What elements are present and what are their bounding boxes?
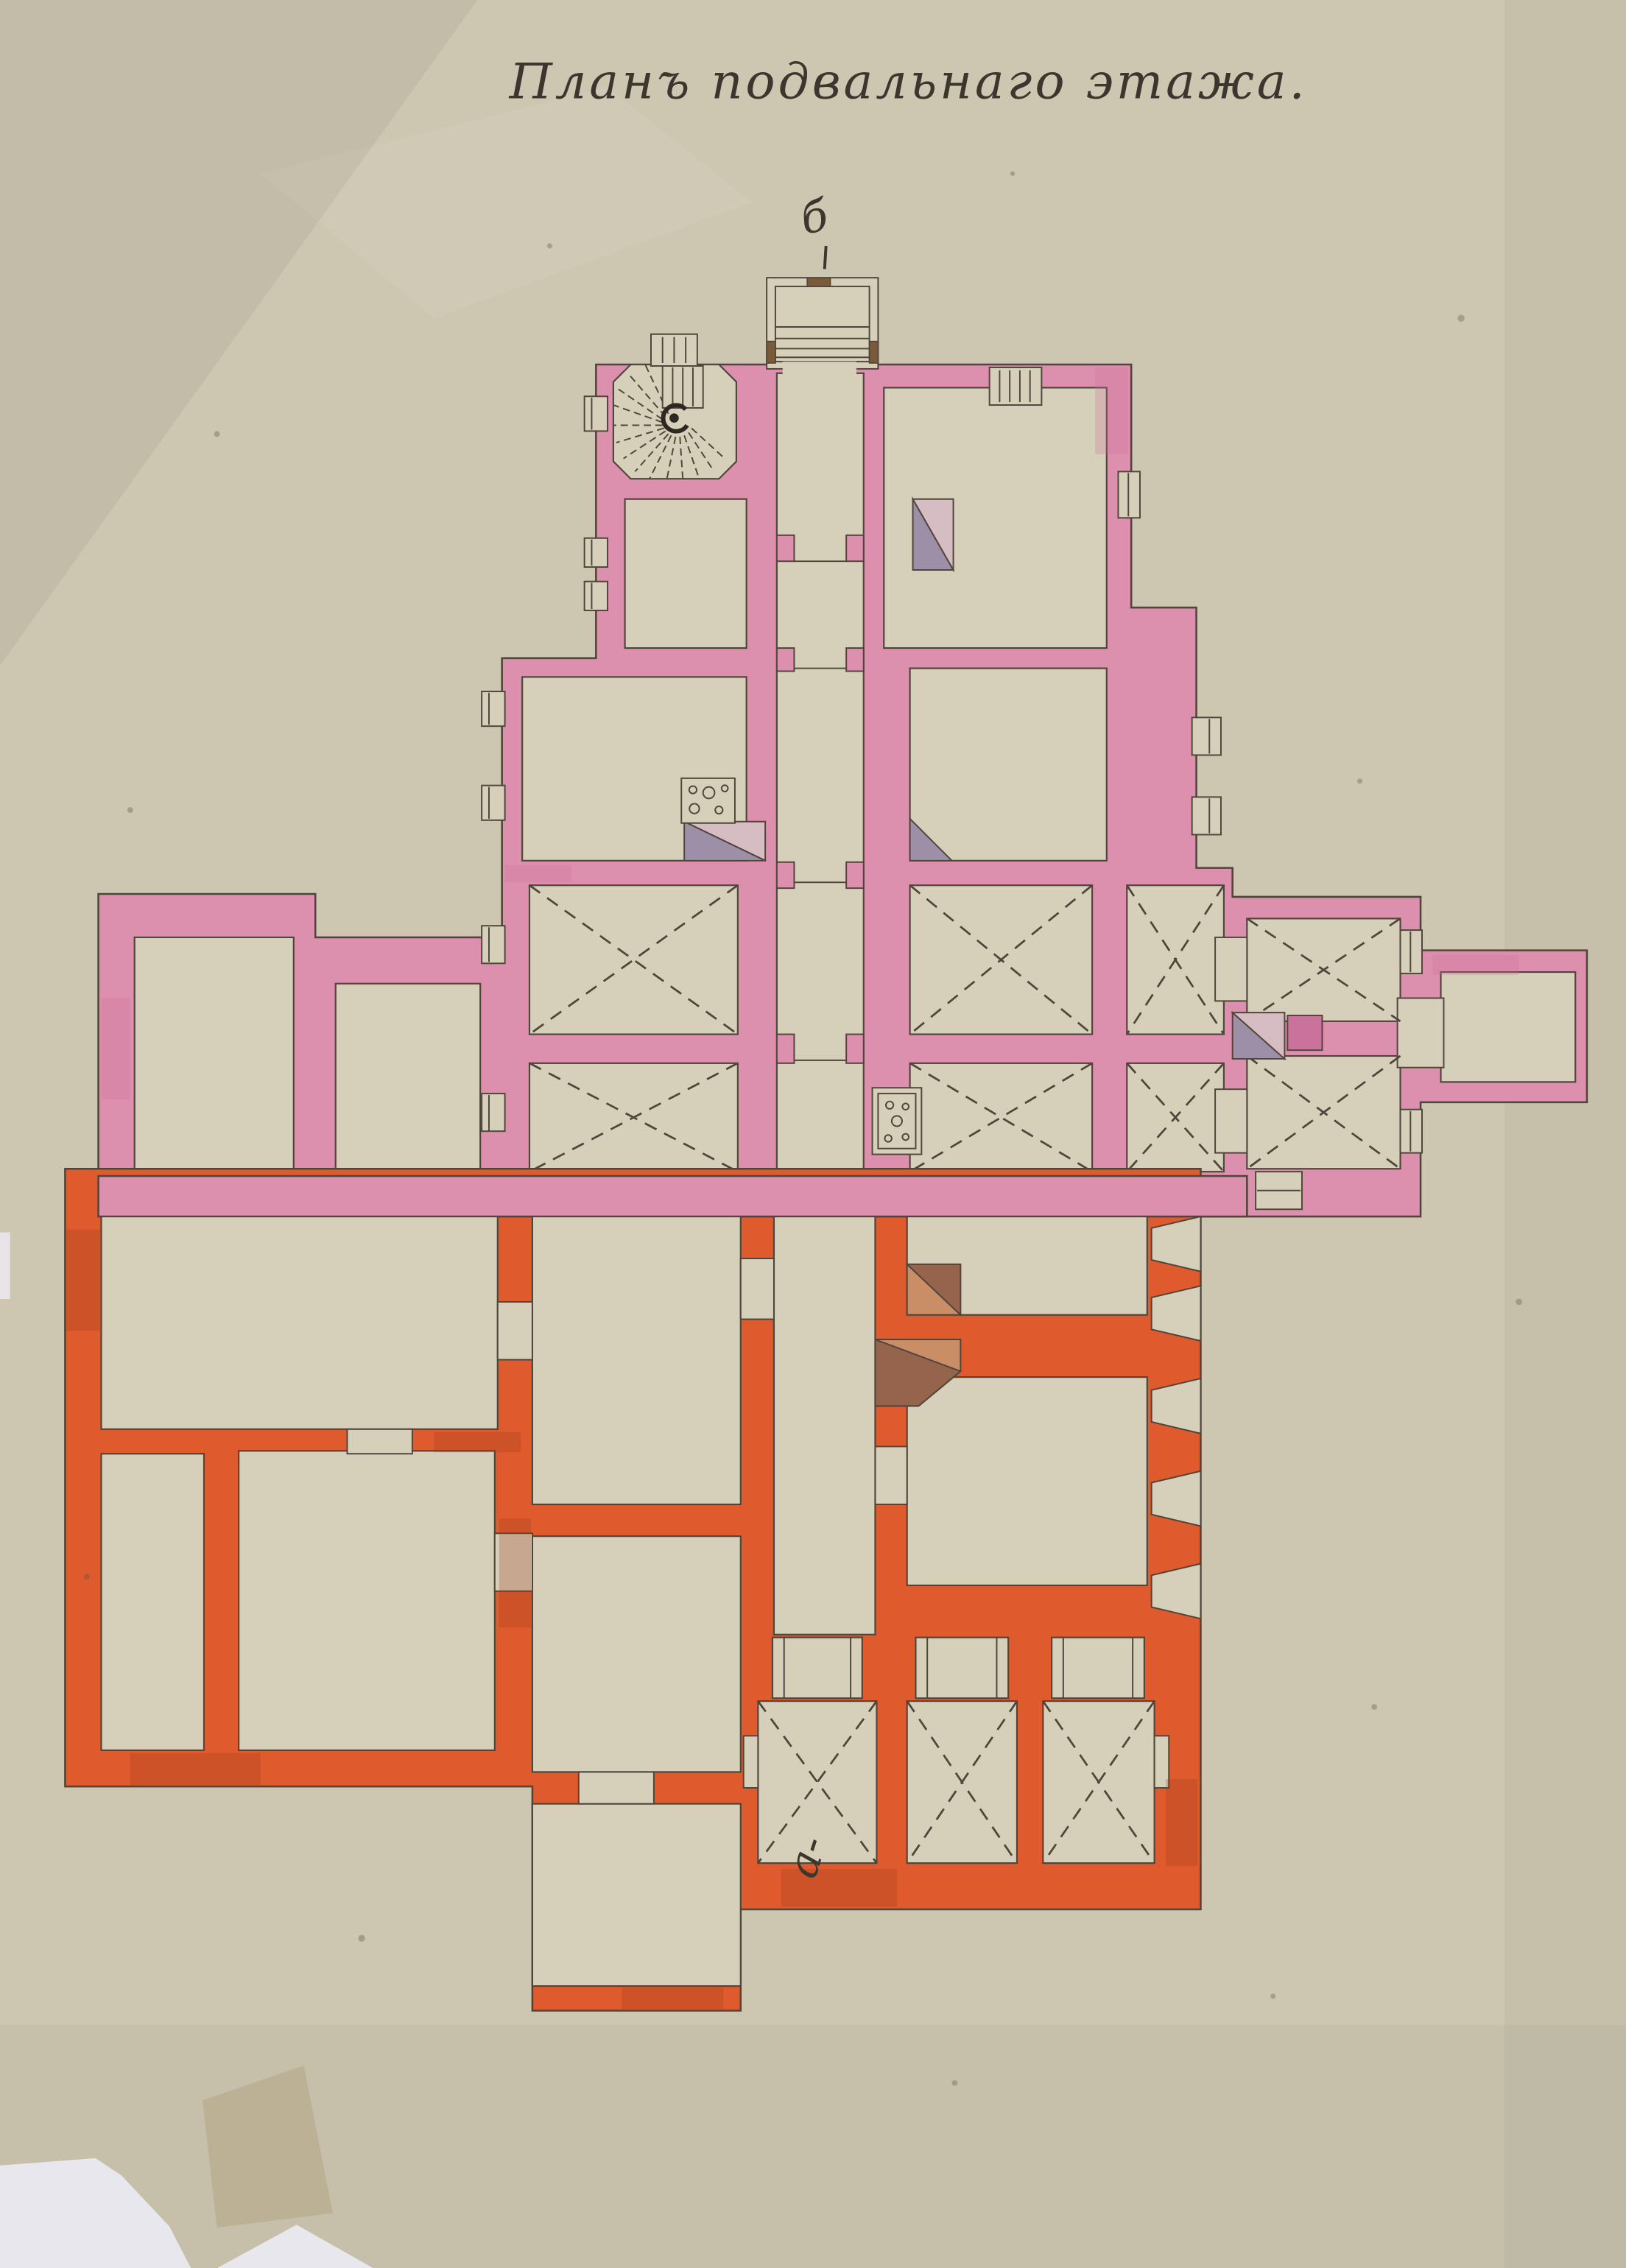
edge-chip <box>0 1233 10 1299</box>
porch-post <box>807 278 830 286</box>
room-below-stair <box>625 499 747 648</box>
corner-stove-lilac <box>684 822 765 861</box>
annex-room-west <box>135 937 294 1174</box>
door-opening <box>1215 1089 1247 1152</box>
lower-room-e2 <box>907 1377 1147 1585</box>
corner-stove-tan <box>907 1264 961 1315</box>
porch-door-opening <box>783 362 856 379</box>
scanned-plan-sheet: Планъ подвальнаго этажа. б <box>0 0 1626 2268</box>
door-opening <box>1215 937 1247 1001</box>
stove-with-burners <box>873 1088 922 1154</box>
plan-title: Планъ подвальнаго этажа. <box>508 53 1308 110</box>
door-opening <box>1398 998 1444 1067</box>
secondary-steps <box>990 367 1042 405</box>
annex-room-east <box>336 984 480 1174</box>
middle-right-room <box>910 669 1107 861</box>
lower-room-center-1 <box>532 1216 741 1504</box>
lower-room-protrusion <box>532 1804 741 1987</box>
corner-stove-lilac <box>913 499 954 570</box>
entrance-porch <box>767 278 878 379</box>
lower-hall-east <box>774 1216 876 1635</box>
lower-room-w-wide <box>239 1451 495 1750</box>
porch-post <box>767 342 775 363</box>
stove-with-burners <box>681 778 735 823</box>
lower-room-w-small <box>102 1454 204 1750</box>
paper-shadow-right <box>1504 0 1626 2268</box>
lower-room-nw <box>102 1216 498 1429</box>
porch-post <box>870 342 879 363</box>
east-corridor-arm-interior <box>1441 972 1576 1082</box>
south-range <box>744 1638 1169 1863</box>
shared-wall-band <box>99 1176 1247 1216</box>
lower-room-center-2 <box>532 1536 741 1772</box>
